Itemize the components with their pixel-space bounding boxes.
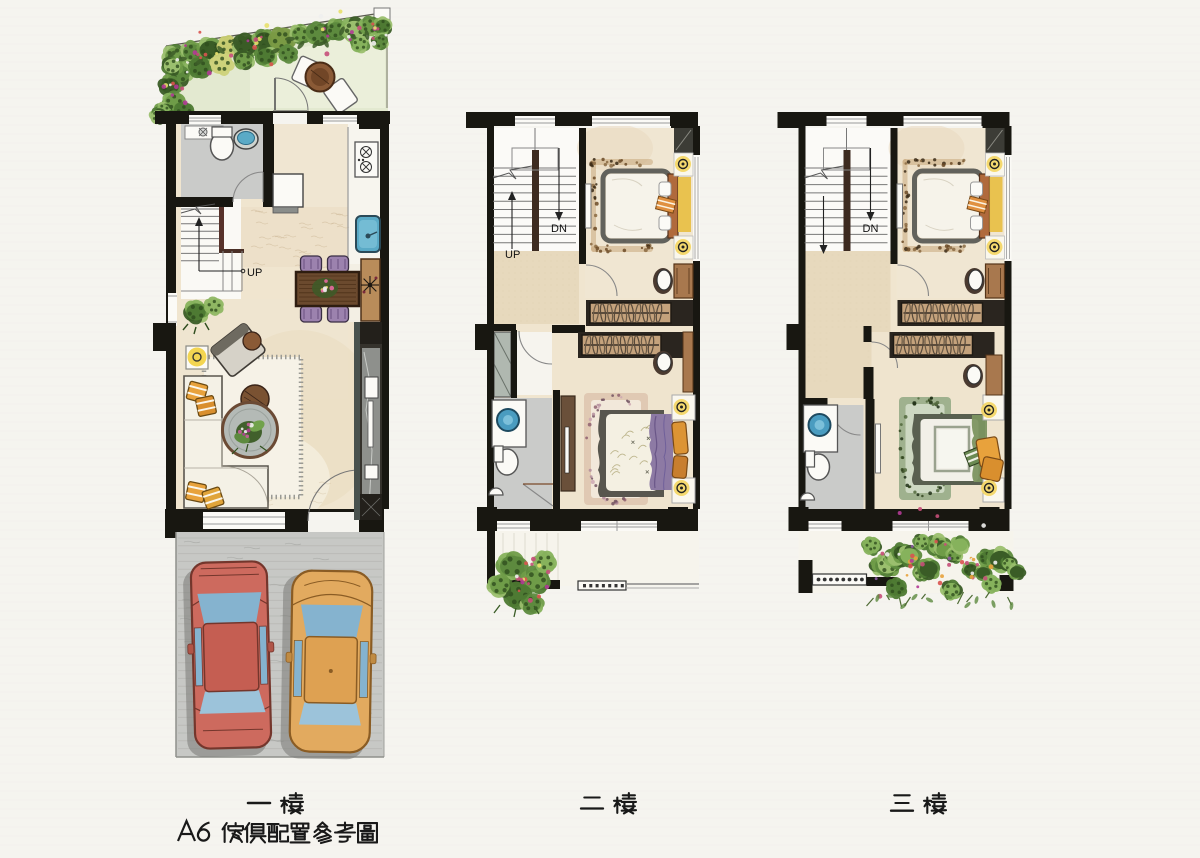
svg-text:UP: UP [247, 267, 262, 279]
svg-text:UP: UP [505, 249, 520, 261]
svg-text:DN: DN [863, 223, 879, 235]
svg-text:DN: DN [551, 223, 567, 235]
